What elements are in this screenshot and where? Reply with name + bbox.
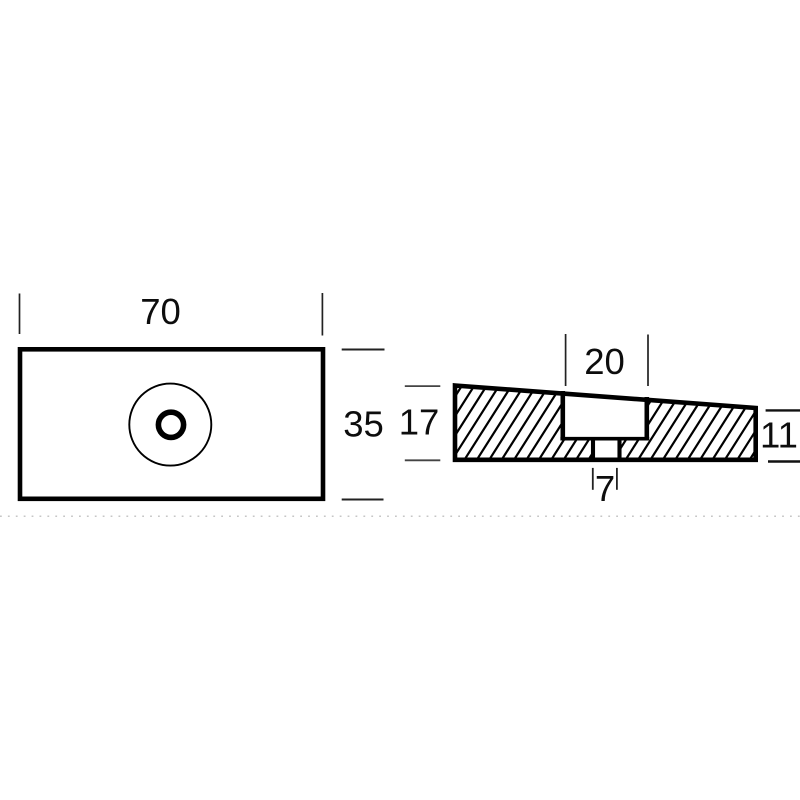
svg-text:70: 70 [140, 291, 181, 332]
svg-text:17: 17 [399, 401, 440, 442]
svg-text:20: 20 [584, 341, 625, 382]
svg-text:11: 11 [760, 415, 798, 456]
svg-text:7: 7 [595, 468, 615, 509]
svg-text:35: 35 [343, 404, 384, 445]
